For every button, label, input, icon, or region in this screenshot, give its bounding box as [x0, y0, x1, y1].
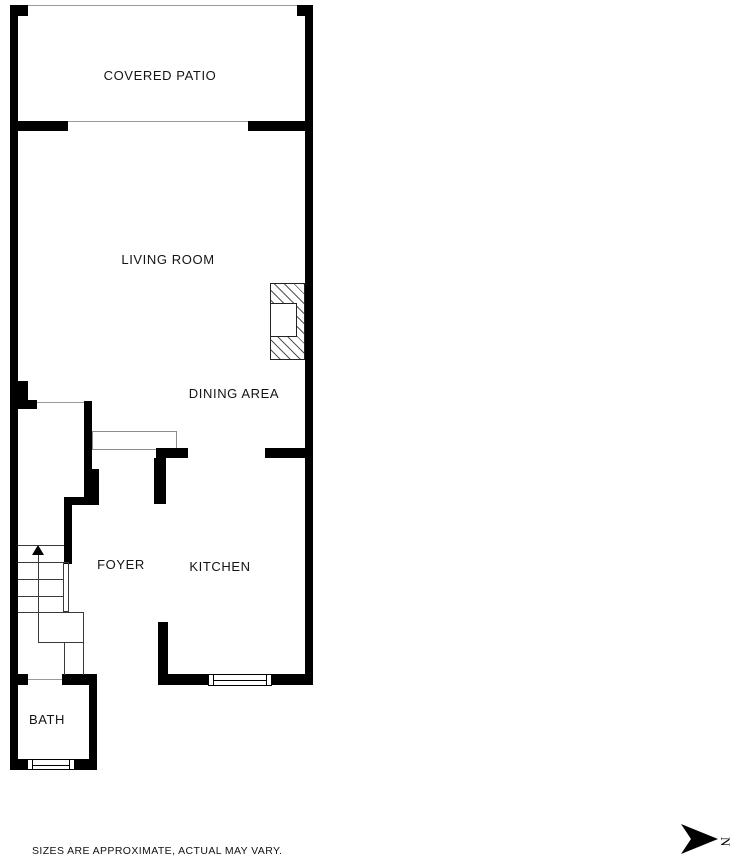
patio-door-line: [68, 121, 248, 122]
kitchen-window-mullion: [213, 680, 267, 681]
stair-up-arrow-icon: [32, 545, 44, 555]
wall-patio-living-right: [248, 121, 313, 131]
kitchen-window-cap-right: [266, 675, 267, 685]
room-label-bath: BATH: [17, 712, 77, 727]
north-arrow-icon: N: [672, 818, 736, 862]
kitchen-window: [208, 674, 272, 686]
wall-left-pilaster: [10, 381, 28, 400]
wall-kitchen-upper: [154, 458, 166, 504]
wall-dining-stub: [265, 448, 305, 458]
room-label-dining-area: DINING AREA: [134, 386, 334, 401]
stair-tread: [18, 596, 64, 597]
stair-tread: [18, 579, 64, 580]
counter-edge-line: [92, 449, 160, 450]
stair-edge-left: [64, 643, 65, 675]
wall-right-exterior: [305, 5, 313, 685]
room-label-foyer: FOYER: [81, 557, 161, 572]
bath-window-cap-left: [32, 760, 33, 769]
bath-window-cap-right: [69, 760, 70, 769]
kitchen-window-cap-left: [213, 675, 214, 685]
wall-patio-living-left: [10, 121, 68, 131]
wall-foyer-left: [64, 497, 72, 564]
patio-open-edge-line: [10, 5, 313, 6]
floor-plan: COVERED PATIO LIVING ROOM DINING AREA FO…: [0, 0, 736, 864]
stair-stringer: [63, 562, 69, 612]
stair-direction-shaft: [38, 553, 39, 643]
room-label-living-room: LIVING ROOM: [68, 252, 268, 267]
wall-kitchen-stub: [156, 448, 188, 458]
room-label-kitchen: KITCHEN: [180, 559, 260, 574]
fireplace-firebox: [270, 303, 297, 337]
stair-landing: [38, 612, 84, 643]
wall-left-jog: [10, 400, 37, 409]
wall-bath-top-left: [10, 674, 28, 685]
bath-window: [27, 759, 75, 770]
wall-closet-right-upper: [84, 401, 92, 469]
stair-edge-right: [83, 643, 84, 675]
disclaimer-text: SIZES ARE APPROXIMATE, ACTUAL MAY VARY.: [32, 845, 282, 857]
room-label-covered-patio: COVERED PATIO: [60, 68, 260, 83]
stair-tread: [18, 562, 64, 563]
wall-bath-right: [89, 674, 97, 770]
bath-door-line: [28, 679, 62, 680]
closet-opening-line: [37, 402, 84, 403]
bath-window-mullion: [32, 765, 70, 766]
north-letter: N: [718, 837, 733, 847]
